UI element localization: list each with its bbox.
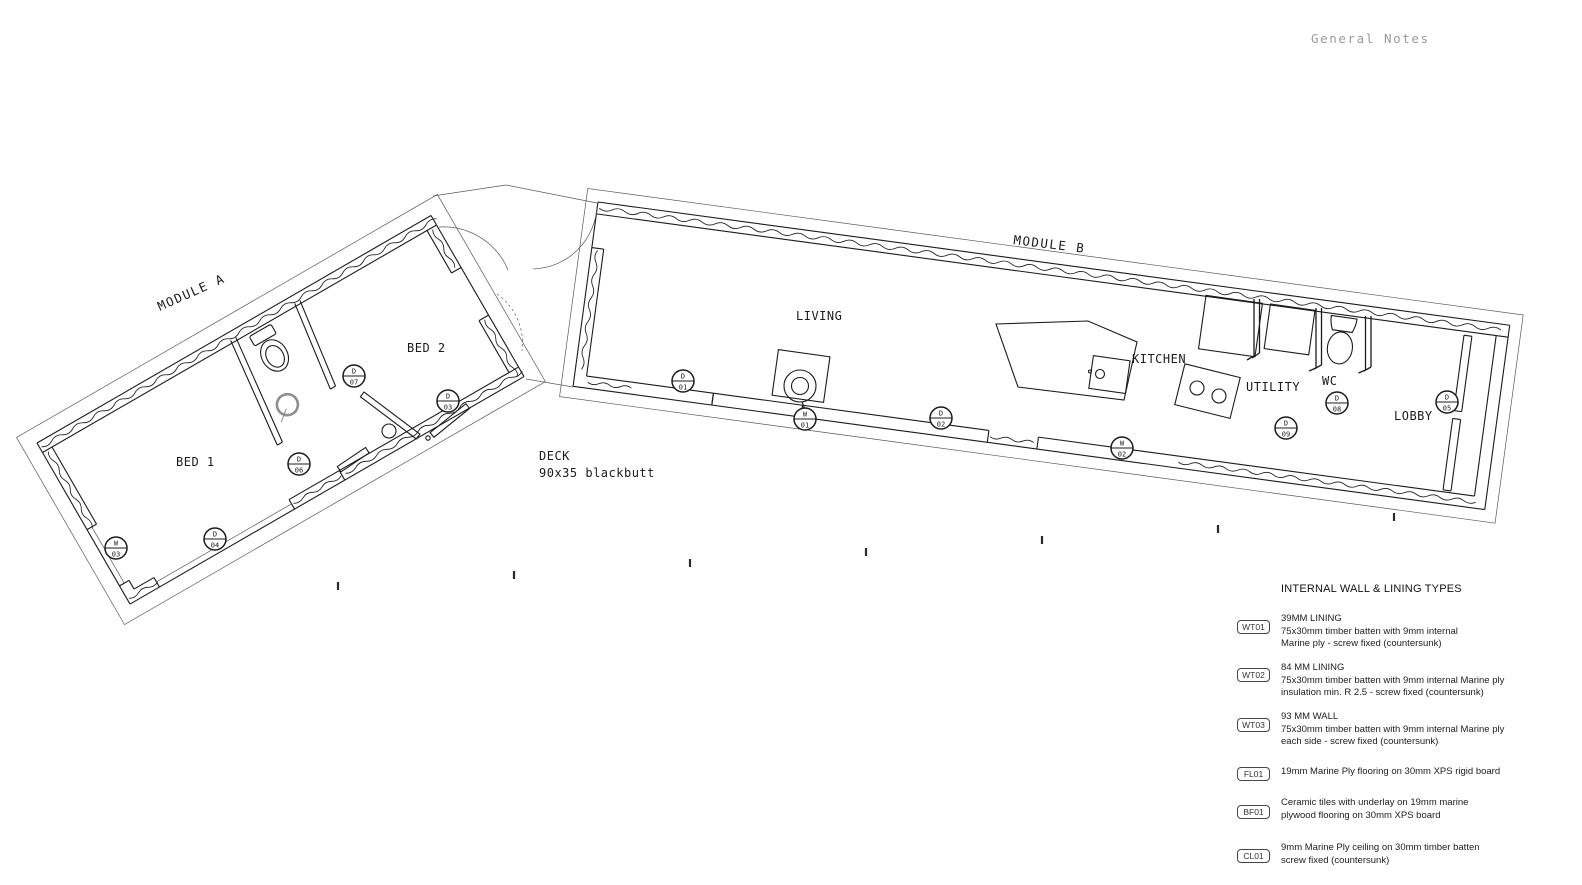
legend-line: 75x30mm timber batten with 9mm internal … xyxy=(1281,675,1504,688)
svg-text:D: D xyxy=(1335,395,1339,403)
washing-machine-icon xyxy=(1264,304,1315,355)
legend-line: 93 MM WALL xyxy=(1281,711,1504,724)
svg-text:03: 03 xyxy=(444,404,452,412)
legend-line: 75x30mm timber batten with 9mm internal … xyxy=(1281,724,1504,737)
marker-W02: W02 xyxy=(1111,437,1133,459)
marker-D06: D06 xyxy=(288,453,310,475)
module-a-right-wall xyxy=(422,216,525,383)
marker-D01: D01 xyxy=(672,370,694,392)
legend-line: 84 MM LINING xyxy=(1281,662,1504,675)
svg-text:03: 03 xyxy=(112,551,120,559)
svg-text:D: D xyxy=(297,456,301,464)
svg-text:D: D xyxy=(939,410,943,418)
module-a-left-wall xyxy=(37,438,140,605)
module-a xyxy=(17,195,546,625)
legend-text-wt01: 39MM LINING 75x30mm timber batten with 9… xyxy=(1281,613,1458,651)
legend-line: 9mm Marine Ply ceiling on 30mm timber ba… xyxy=(1281,842,1480,855)
module-a-label: MODULE A xyxy=(155,271,227,314)
svg-text:04: 04 xyxy=(211,542,219,550)
toilet-icon xyxy=(249,324,294,376)
legend-line: insulation min. R 2.5 - screw fixed (cou… xyxy=(1281,687,1504,700)
svg-text:D: D xyxy=(681,373,685,381)
module-b-label: MODULE B xyxy=(1013,232,1087,256)
room-label-wc: WC xyxy=(1322,374,1337,388)
legend-text-cl01: 9mm Marine Ply ceiling on 30mm timber ba… xyxy=(1281,842,1480,867)
door-knob-icon xyxy=(382,424,396,438)
wc-toilet-icon xyxy=(1325,315,1357,365)
svg-text:06: 06 xyxy=(295,467,303,475)
door-swing-arc xyxy=(439,227,508,270)
module-b-right-wall xyxy=(1473,324,1510,510)
setout-ticks xyxy=(338,513,1394,590)
general-notes-heading: General Notes xyxy=(1311,31,1430,46)
svg-text:D: D xyxy=(1445,394,1449,402)
door-hinge-dot xyxy=(426,436,430,440)
partition-wc-lobby xyxy=(1359,316,1372,373)
partition-kitchen-utility xyxy=(1247,299,1260,360)
legend-code-wt01: WT01 xyxy=(1237,620,1270,634)
marker-D04: D04 xyxy=(204,528,226,550)
legend-line: screw fixed (countersunk) xyxy=(1281,855,1480,868)
svg-text:01: 01 xyxy=(679,384,687,392)
svg-text:02: 02 xyxy=(1118,451,1126,459)
svg-text:D: D xyxy=(1284,420,1288,428)
legend-code-bf01: BF01 xyxy=(1237,805,1270,819)
svg-text:09: 09 xyxy=(1282,431,1290,439)
svg-text:01: 01 xyxy=(801,422,809,430)
module-b-bottom-wall xyxy=(573,374,1486,509)
kitchen-island xyxy=(996,321,1137,400)
svg-text:08: 08 xyxy=(1333,406,1341,414)
room-label-living: LIVING xyxy=(796,309,842,323)
sink-icon xyxy=(1089,356,1131,394)
module-b-top-wall xyxy=(596,202,1509,337)
module-b-fixtures xyxy=(772,295,1357,418)
cooktop-icon xyxy=(1175,364,1240,419)
marker-D08: D08 xyxy=(1326,392,1348,414)
marker-D02: D02 xyxy=(930,407,952,429)
bathroom-wall-right xyxy=(284,300,346,389)
module-a-top-wall xyxy=(37,214,439,453)
svg-text:02: 02 xyxy=(937,421,945,429)
marker-D09: D09 xyxy=(1275,417,1297,439)
deck-connection xyxy=(433,185,597,387)
legend-code-wt02: WT02 xyxy=(1237,668,1270,682)
legend-line: 19mm Marine Ply flooring on 30mm XPS rig… xyxy=(1281,766,1500,779)
room-label-bed2: BED 2 xyxy=(407,341,446,355)
marker-D07: D07 xyxy=(343,365,365,387)
legend-line: plywood flooring on 30mm XPS board xyxy=(1281,810,1468,823)
marker-W01: W01 xyxy=(794,408,816,430)
svg-text:D: D xyxy=(213,531,217,539)
room-label-utility: UTILITY xyxy=(1246,380,1300,394)
marker-D05: D05 xyxy=(1436,391,1458,413)
legend-title: INTERNAL WALL & LINING TYPES xyxy=(1281,583,1462,595)
legend-text-wt03: 93 MM WALL 75x30mm timber batten with 9m… xyxy=(1281,711,1504,749)
marker-W03: W03 xyxy=(105,537,127,559)
round-basin-icon xyxy=(270,390,302,422)
svg-text:07: 07 xyxy=(350,379,358,387)
legend-line: each side - screw fixed (countersunk) xyxy=(1281,736,1504,749)
legend-code-wt03: WT03 xyxy=(1237,718,1270,732)
kitchen-counter xyxy=(1199,295,1263,356)
entry-door-swing-arc xyxy=(533,206,597,269)
door-leaf xyxy=(360,392,420,439)
svg-text:D: D xyxy=(352,368,356,376)
legend-text-wt02: 84 MM LINING 75x30mm timber batten with … xyxy=(1281,662,1504,700)
legend-line: 75x30mm timber batten with 9mm internal xyxy=(1281,626,1458,639)
deck-label-line1: DECK xyxy=(539,449,570,463)
module-a-bottom-wall xyxy=(125,367,525,605)
legend-line: Ceramic tiles with underlay on 19mm mari… xyxy=(1281,797,1468,810)
svg-text:D: D xyxy=(446,393,450,401)
wood-stove-icon xyxy=(772,350,830,409)
svg-text:05: 05 xyxy=(1443,405,1451,413)
legend-code-cl01: CL01 xyxy=(1237,849,1270,863)
marker-D03: D03 xyxy=(437,390,459,412)
deck-label-line2: 90x35 blackbutt xyxy=(539,466,655,480)
wall-lining-legend: INTERNAL WALL & LINING TYPES WT01 39MM L… xyxy=(1237,583,1552,873)
legend-line: 39MM LINING xyxy=(1281,613,1458,626)
room-label-bed1: BED 1 xyxy=(176,455,215,469)
legend-text-bf01: Ceramic tiles with underlay on 19mm mari… xyxy=(1281,797,1468,822)
legend-line: Marine ply - screw fixed (countersunk) xyxy=(1281,638,1458,651)
room-label-lobby: LOBBY xyxy=(1394,409,1433,423)
legend-text-fl01: 19mm Marine Ply flooring on 30mm XPS rig… xyxy=(1281,766,1500,779)
room-label-kitchen: KITCHEN xyxy=(1132,352,1186,366)
legend-code-fl01: FL01 xyxy=(1237,767,1270,781)
door-swing-arc-dashed xyxy=(497,294,523,351)
